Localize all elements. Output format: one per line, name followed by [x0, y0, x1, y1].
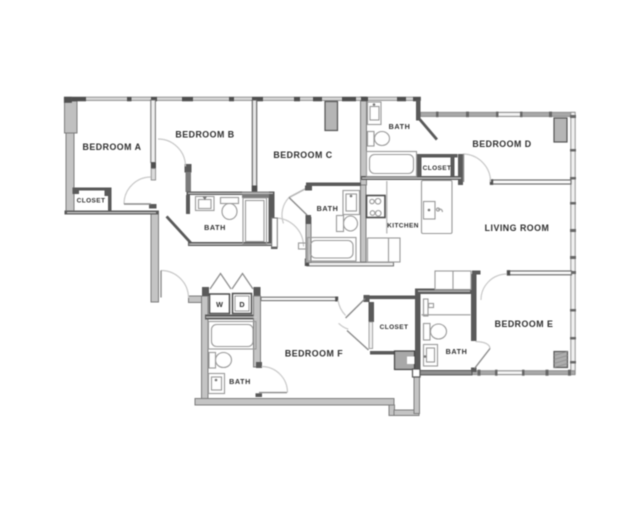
svg-text:BEDROOM C: BEDROOM C: [273, 150, 332, 160]
svg-text:BATH: BATH: [446, 347, 468, 356]
svg-text:W: W: [216, 300, 223, 309]
svg-text:BATH: BATH: [229, 377, 251, 386]
svg-text:CLOSET: CLOSET: [380, 324, 409, 331]
svg-text:BEDROOM A: BEDROOM A: [83, 142, 142, 152]
svg-text:BATH: BATH: [389, 122, 411, 131]
svg-text:BEDROOM D: BEDROOM D: [472, 139, 531, 149]
svg-text:BATH: BATH: [317, 204, 339, 213]
svg-text:BEDROOM E: BEDROOM E: [495, 319, 554, 329]
svg-text:D: D: [239, 300, 244, 309]
svg-text:BATH: BATH: [204, 223, 226, 232]
svg-text:BEDROOM B: BEDROOM B: [175, 130, 234, 140]
svg-text:KITCHEN: KITCHEN: [387, 223, 419, 230]
svg-text:CLOSET: CLOSET: [423, 165, 452, 172]
svg-text:CLOSET: CLOSET: [77, 198, 106, 205]
svg-text:LIVING ROOM: LIVING ROOM: [485, 223, 550, 233]
svg-text:BEDROOM F: BEDROOM F: [285, 349, 343, 359]
